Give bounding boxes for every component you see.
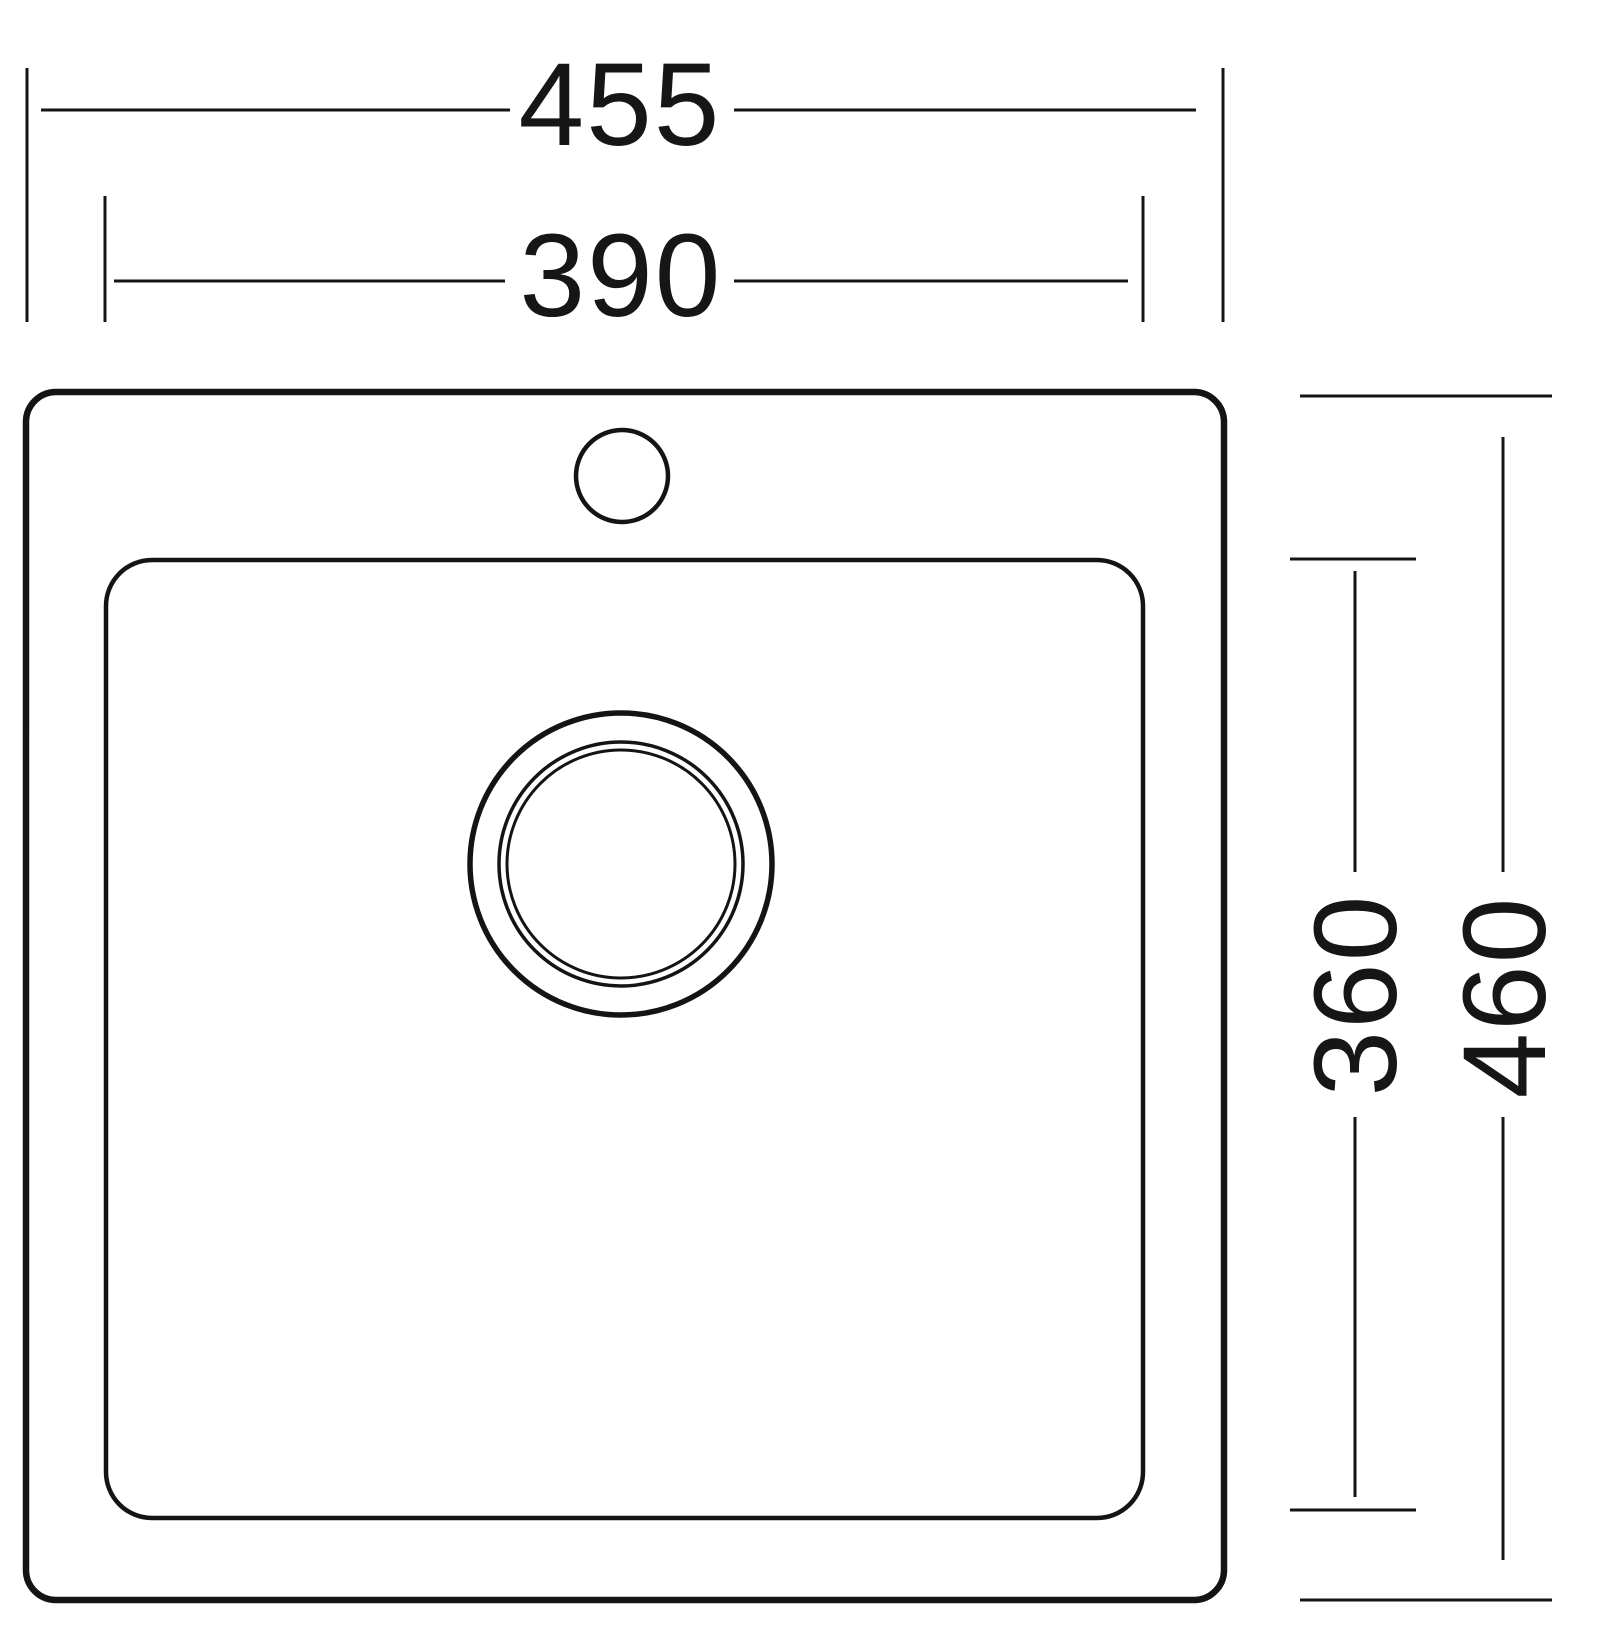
sink-top-view xyxy=(26,392,1224,1600)
basin-outline xyxy=(106,560,1143,1518)
sink-technical-drawing: 455 390 360 460 xyxy=(0,0,1600,1626)
sink-outline xyxy=(26,392,1224,1600)
dim-label-basin-width: 390 xyxy=(520,217,723,335)
dim-label-overall-depth: 460 xyxy=(1446,896,1564,1099)
drawing-canvas xyxy=(0,0,1600,1626)
faucet-hole-icon xyxy=(576,430,668,522)
dim-label-overall-width: 455 xyxy=(519,46,722,164)
dim-label-basin-depth: 360 xyxy=(1297,894,1415,1097)
drain-icon xyxy=(470,713,772,1015)
